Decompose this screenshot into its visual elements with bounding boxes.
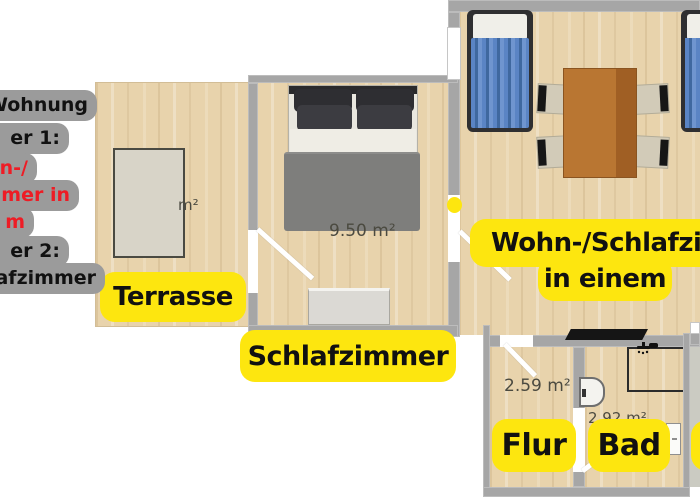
terrasse-table [113, 148, 185, 258]
single-bed-right [681, 10, 700, 132]
bed-blue-cover [685, 38, 700, 128]
wall-schlafzimmer-top [248, 75, 458, 83]
wall-bad-right [683, 333, 690, 497]
schlafzimmer-area-text: 9.50 m² [329, 221, 396, 241]
wall-flur-left [483, 325, 490, 497]
chair-backrest [537, 85, 546, 111]
schlafzimmer-label: Schlafzimmer [240, 330, 456, 382]
shower-head-icon [636, 340, 660, 360]
bed-blanket [284, 152, 420, 231]
doormat [565, 329, 648, 340]
sink [579, 377, 605, 407]
terrasse-label: Terrasse [100, 272, 246, 322]
dining-table [563, 68, 637, 178]
chair [632, 83, 670, 115]
window-living-left [447, 27, 461, 80]
wall-bottom [483, 487, 690, 497]
note-line: Wohnung [0, 90, 97, 121]
sink-tap [582, 389, 586, 397]
flur-area-text: 2.59 m² [504, 376, 571, 396]
note-line: er 1: [0, 123, 69, 154]
bad-label: Bad [588, 419, 670, 472]
bed-pillow [297, 105, 352, 131]
bed-pillow [473, 14, 527, 40]
chair-backrest [537, 139, 546, 165]
floor-plan: m² Terrasse 9.50 m² Schlafzimmer Wohn-/S… [0, 0, 700, 500]
terrasse-area-text: m² [178, 196, 199, 214]
flur-label: Flur [492, 419, 576, 472]
window-right [690, 322, 700, 334]
dresser [308, 288, 390, 325]
note-line: m [0, 207, 34, 238]
chair-backrest [659, 85, 668, 111]
wall-right-stub [690, 333, 700, 345]
door-opening-terrasse [248, 230, 258, 293]
bed-sheet [290, 129, 416, 154]
radiator-mark [672, 438, 677, 440]
chair-backrest [659, 139, 668, 165]
bed-blue-drape [460, 64, 536, 133]
bed-pillow [357, 105, 412, 131]
wohnzimmer-label-line2: in einem [538, 257, 672, 301]
note-line: afzimmer [0, 263, 105, 294]
door-marker-dot [447, 197, 462, 213]
chair [632, 135, 670, 169]
bed-pillow [687, 14, 700, 40]
